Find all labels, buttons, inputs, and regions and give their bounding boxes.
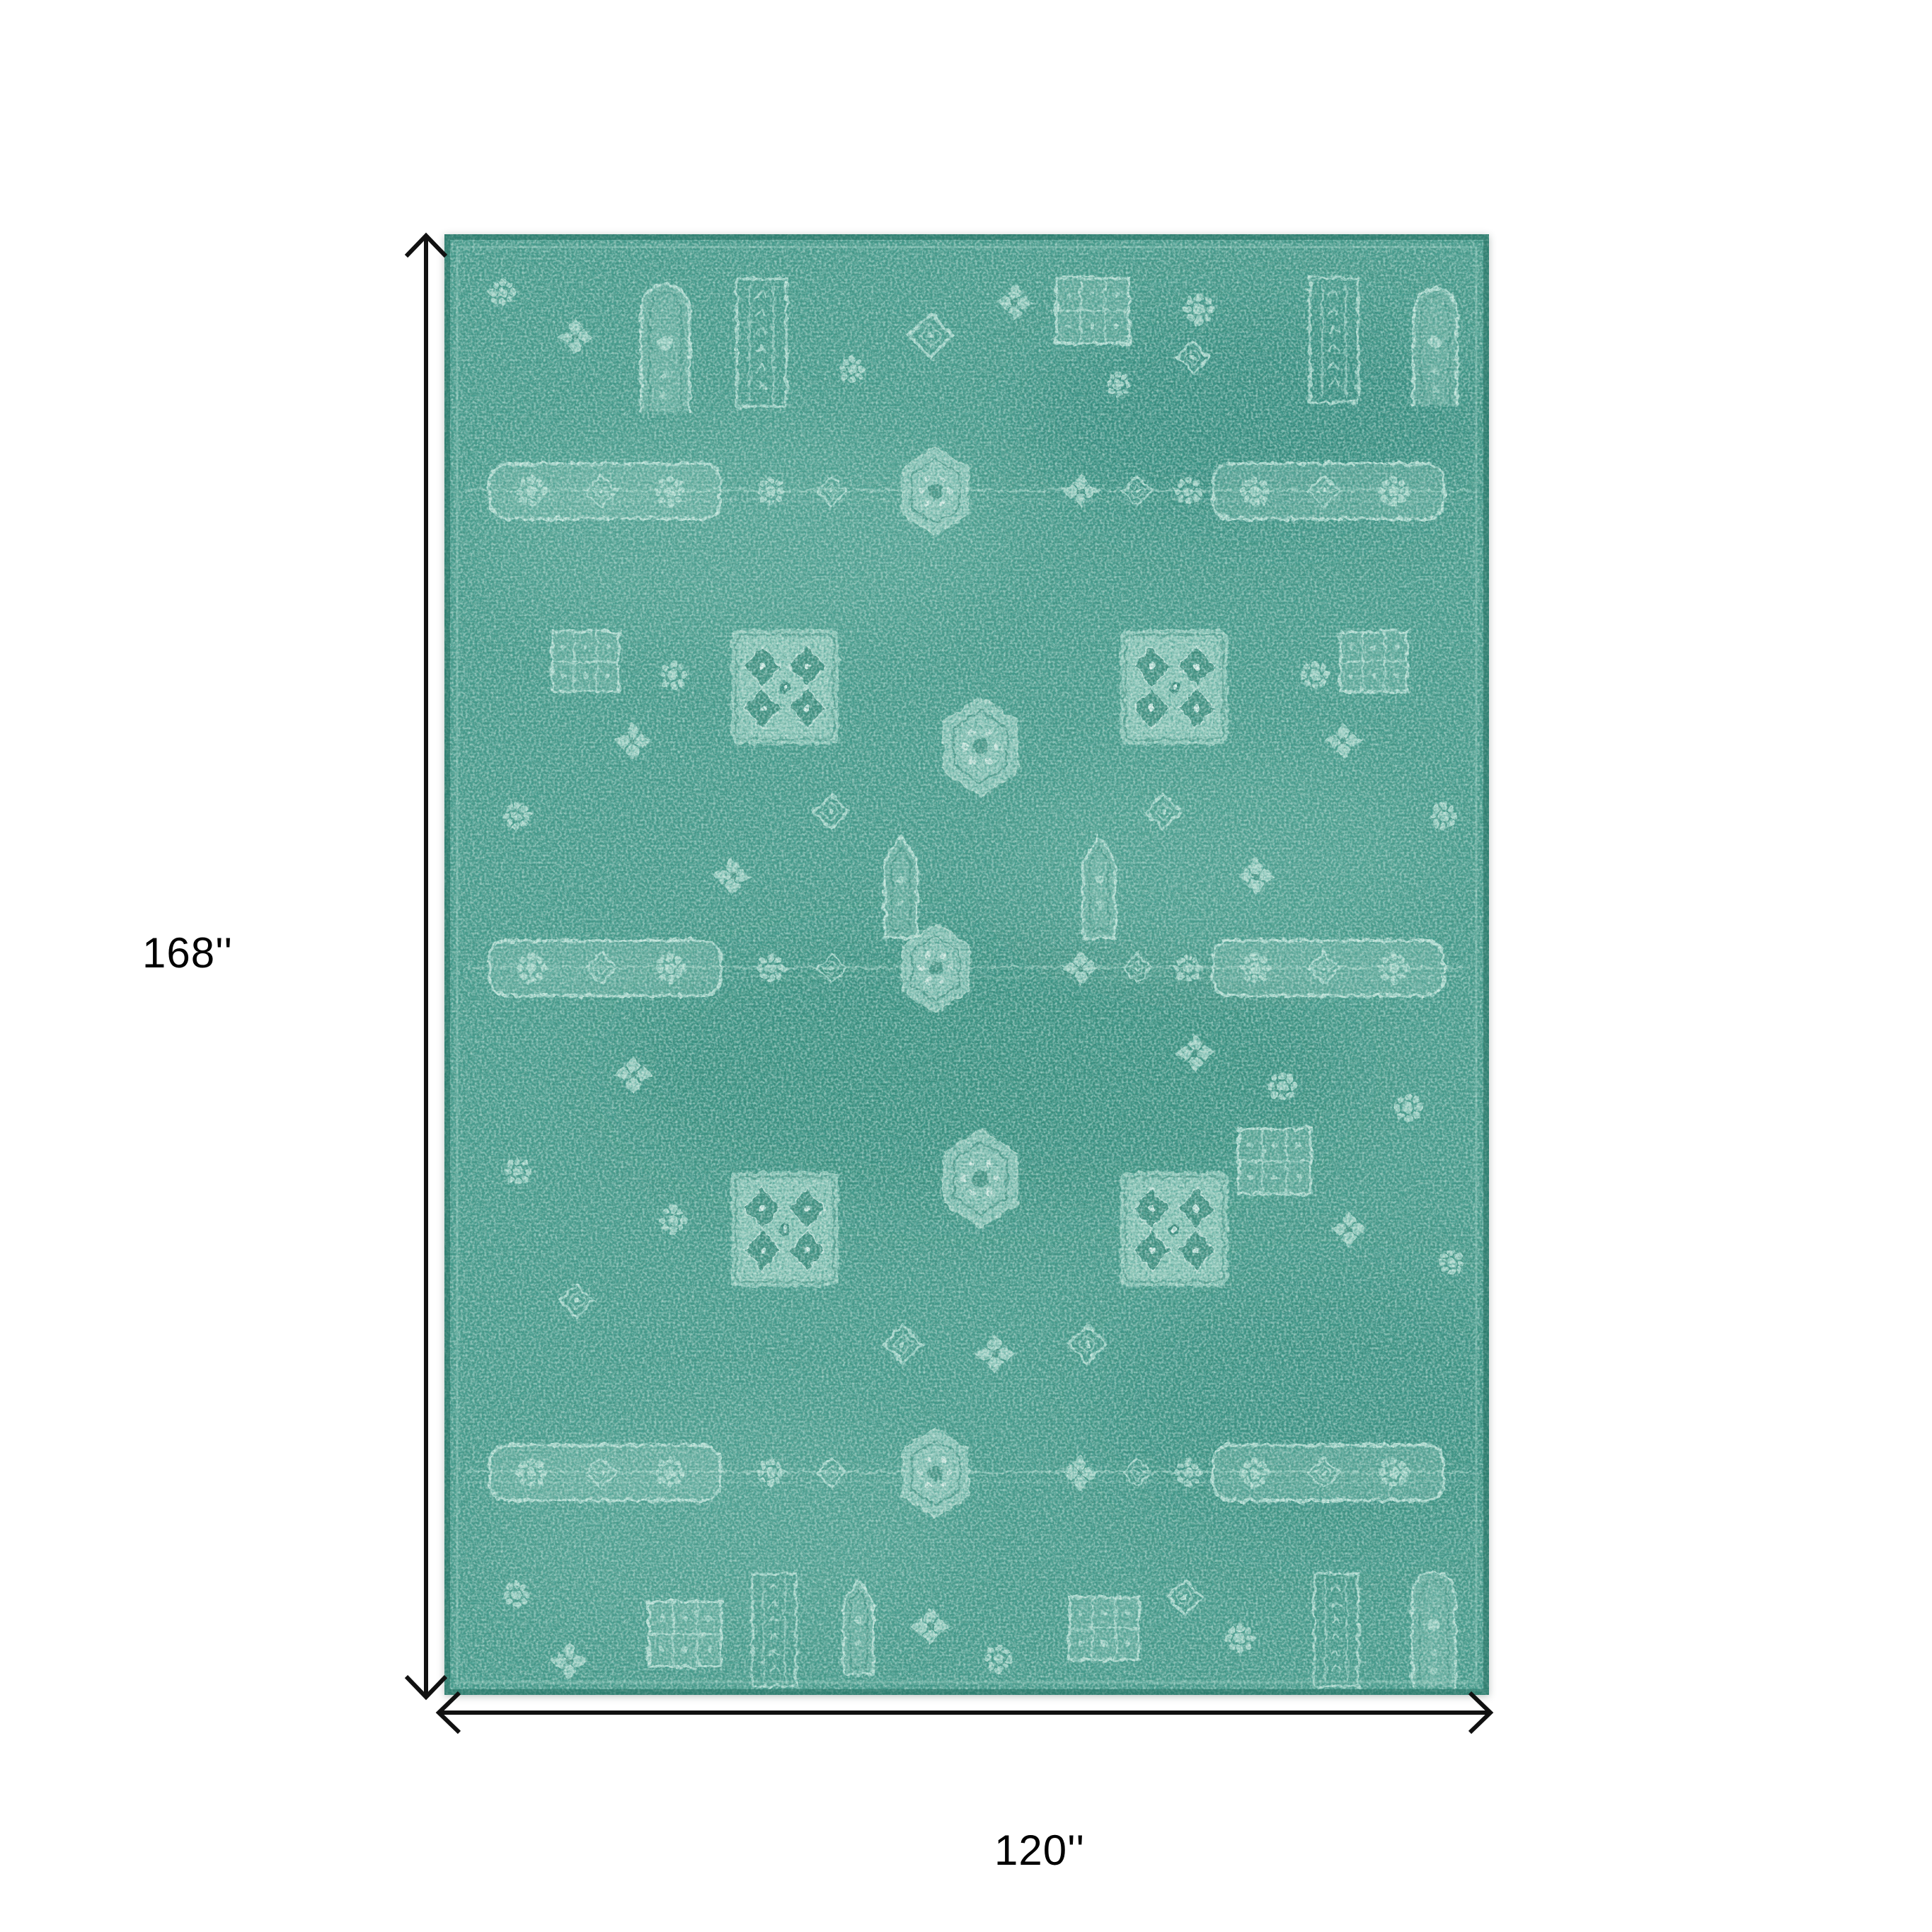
width-arrow — [439, 1693, 1490, 1732]
rug-image — [444, 234, 1489, 1695]
width-dimension-label: 120'' — [994, 1826, 1085, 1875]
height-dimension-label: 168'' — [142, 928, 233, 977]
product-dimension-diagram: 168'' 120'' — [0, 0, 1932, 1932]
rug-pattern-svg — [444, 234, 1489, 1695]
height-arrow — [406, 236, 446, 1697]
